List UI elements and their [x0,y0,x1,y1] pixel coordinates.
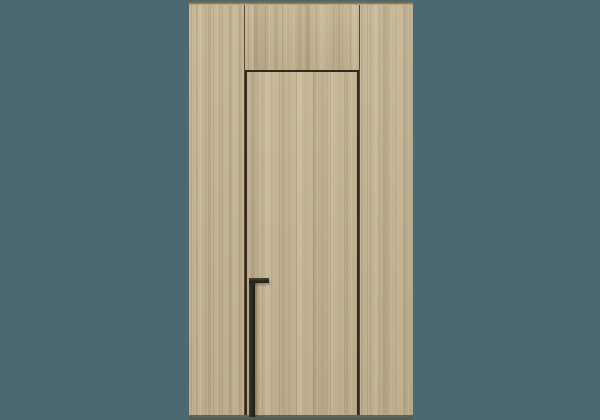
scene-background [0,0,600,420]
handle-horizontal-bar [249,278,269,283]
wall-panel-right-stile [359,2,413,415]
panel-seam-right [359,2,360,415]
door-gap-left [245,70,247,415]
door-gap-top [245,70,359,72]
wall-panel-transom [245,2,359,70]
panel-top-edge [189,2,413,5]
handle-vertical-bar [249,278,255,420]
door-pull-handle [249,278,270,420]
wood-wall-paneling [189,2,413,415]
door-gap-right [357,70,359,415]
wall-panel-left-stile [189,2,245,415]
